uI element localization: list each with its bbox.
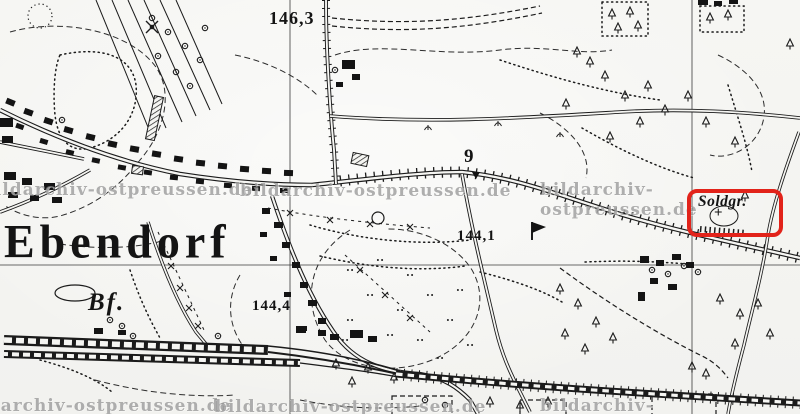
grave-cross-icon: +: [714, 206, 723, 221]
watermark-text: bildarchiv-ostpreussen.de: [215, 397, 486, 414]
farm-and-station-buildings: [94, 60, 377, 342]
watermark-text: bildarchiv-ostpreussen.de: [0, 396, 231, 414]
historic-map-scan: Ebendorf Bf. 146,3 144,1 144,4 9 bildarc…: [0, 0, 800, 414]
spot-height-144-1: 144,1: [457, 229, 496, 244]
watermark-text: bildarchiv-ostpreussen.de: [540, 396, 800, 414]
spot-height-144-4: 144,4: [252, 299, 291, 314]
east-hamlet-buildings: [638, 0, 738, 301]
flag-marker-icon: [532, 222, 546, 240]
watermark-text: bildarchiv-ostpreussen.de: [240, 181, 511, 201]
spot-height-146: 146,3: [269, 9, 315, 27]
railway: [4, 340, 800, 403]
meadow-symbols: [342, 121, 564, 359]
road-number-label: 9: [464, 147, 474, 166]
station-abbrev-label: Bf.: [88, 290, 125, 315]
watermark-text: bildarchiv-ostpreussen.de: [0, 180, 253, 200]
town-name-label: Ebendorf: [4, 218, 231, 266]
